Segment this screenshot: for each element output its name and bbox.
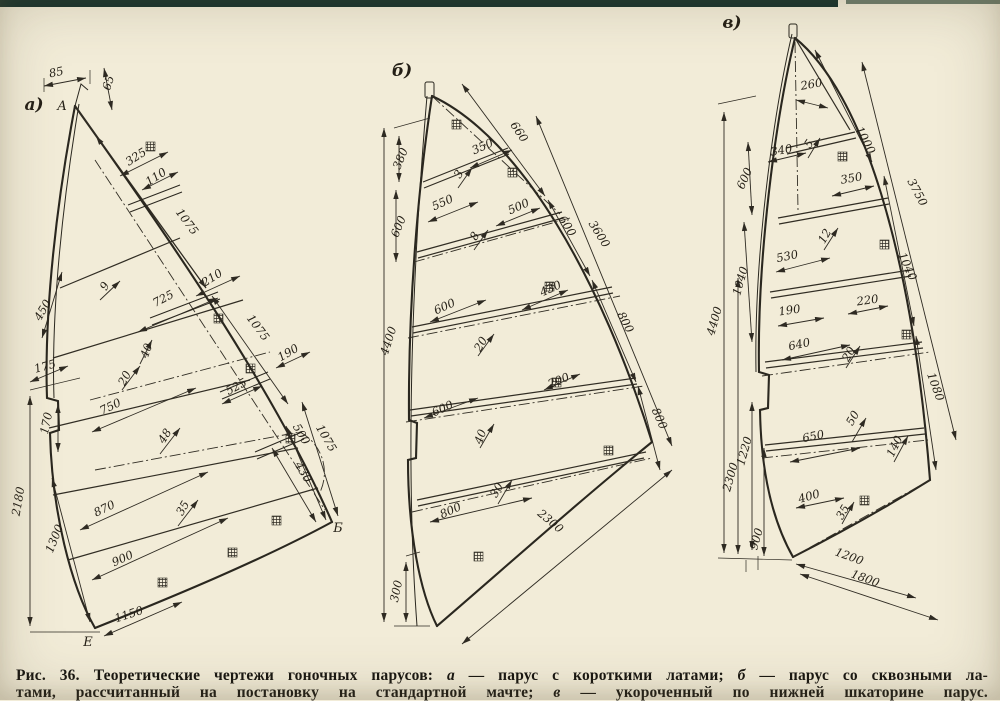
svg-text:640: 640 (787, 335, 811, 353)
svg-text:600: 600 (388, 214, 409, 240)
svg-text:1075: 1075 (173, 206, 202, 238)
svg-text:430: 430 (291, 458, 315, 485)
figure-number: Рис. 36. (16, 667, 80, 684)
caption-text: — парус со сквозными ла- (746, 667, 988, 684)
svg-text:3600: 3600 (586, 218, 613, 250)
svg-text:140: 140 (883, 433, 905, 459)
sail-b-drawing: б) 380 600 4400 660 350 3 550 500 8 600 … (377, 61, 672, 644)
svg-text:550: 550 (429, 191, 455, 213)
svg-text:800: 800 (649, 405, 671, 431)
scanned-figure-page: { "figure": { "number": "Рис. 36.", "sub… (0, 0, 1000, 700)
svg-text:800: 800 (614, 309, 637, 335)
svg-text:260: 260 (798, 75, 823, 93)
svg-text:20: 20 (114, 368, 134, 388)
svg-text:20: 20 (470, 334, 490, 355)
figure-caption: Рис. 36.Теоретические чертежи гоночных п… (16, 668, 988, 701)
svg-text:190: 190 (275, 341, 301, 364)
panel-label-b: б) (392, 61, 412, 81)
svg-text:800: 800 (437, 499, 463, 521)
caption-line-2: тами, рассчитанный на постановку на стан… (16, 685, 988, 701)
svg-text:3750: 3750 (904, 176, 930, 208)
svg-text:4400: 4400 (703, 305, 725, 338)
caption-italic-b: б (738, 667, 746, 684)
sail-a-dimension-labels: 85 65 325 110 1075 210 450 9 725 40 1075… (8, 64, 339, 626)
svg-text:1800: 1800 (849, 567, 881, 590)
sail-v-battens (762, 38, 930, 557)
svg-text:350: 350 (839, 169, 863, 187)
svg-text:870: 870 (91, 497, 117, 519)
svg-text:600: 600 (429, 397, 455, 419)
svg-text:300: 300 (387, 579, 405, 603)
svg-text:530: 530 (775, 247, 799, 265)
svg-text:1150: 1150 (113, 603, 145, 625)
sail-b-dimension-lines (384, 84, 672, 644)
sail-drawings-canvas: а) А Б Е 85 65 325 110 1075 210 450 9 72… (0, 0, 1000, 662)
point-label-head-a: А (56, 99, 67, 114)
caption-italic-v: в (553, 684, 560, 701)
svg-text:1080: 1080 (924, 370, 947, 402)
caption-italic-a: а (447, 667, 455, 684)
caption-text: — укороченный по нижней шкаторине парус. (561, 684, 988, 701)
sail-a-leech (75, 106, 332, 522)
sail-v-mast-line (756, 34, 792, 372)
svg-text:12: 12 (815, 226, 834, 246)
svg-text:48: 48 (154, 426, 174, 447)
svg-text:110: 110 (143, 165, 169, 189)
caption-text: Теоретические чертежи гоночных парусов: (94, 667, 447, 684)
svg-text:40: 40 (137, 341, 156, 360)
svg-text:35: 35 (173, 498, 192, 518)
svg-text:4400: 4400 (377, 325, 400, 358)
svg-text:325: 325 (123, 145, 149, 169)
svg-text:600: 600 (431, 295, 457, 317)
svg-text:430: 430 (537, 277, 564, 299)
svg-text:35: 35 (833, 502, 852, 522)
svg-text:1075: 1075 (244, 312, 273, 344)
svg-text:5: 5 (801, 137, 817, 151)
svg-text:600: 600 (556, 213, 580, 239)
caption-text: тами, рассчитанный на постановку на стан… (16, 684, 553, 701)
svg-text:85: 85 (48, 64, 65, 81)
svg-text:340: 340 (769, 141, 793, 159)
svg-text:500: 500 (505, 195, 531, 217)
svg-text:2300: 2300 (534, 506, 566, 536)
panel-label-a: а) (24, 95, 43, 115)
svg-text:210: 210 (198, 266, 225, 290)
svg-text:725: 725 (150, 287, 176, 310)
svg-text:1000: 1000 (852, 124, 878, 156)
point-label-clew-a: Б (332, 521, 343, 536)
svg-text:65: 65 (99, 74, 117, 92)
svg-text:650: 650 (801, 427, 825, 445)
sail-a-hatch-marks (146, 142, 295, 587)
sail-b-foot (437, 442, 652, 626)
svg-text:750: 750 (97, 395, 123, 417)
caption-line-1: Рис. 36.Теоретические чертежи гоночных п… (16, 668, 988, 685)
svg-text:190: 190 (778, 302, 802, 319)
svg-text:2180: 2180 (8, 486, 27, 518)
sail-v-masthead (789, 24, 797, 38)
sail-a-drawing: а) А Б Е 85 65 325 110 1075 210 450 9 72… (8, 64, 343, 650)
svg-text:600: 600 (733, 165, 755, 191)
panel-label-v: в) (722, 13, 741, 33)
sail-a-seams (49, 106, 318, 560)
point-label-tack-a: Е (82, 635, 93, 650)
sail-a-masthead (75, 84, 88, 106)
sail-v-drawing: в) 260 1000 340 5 600 350 3750 530 12 10… (703, 13, 956, 620)
svg-text:50: 50 (843, 408, 862, 428)
svg-text:900: 900 (746, 526, 766, 551)
svg-text:1200: 1200 (833, 545, 865, 568)
svg-text:525: 525 (223, 375, 249, 398)
svg-text:30: 30 (487, 480, 506, 500)
svg-text:900: 900 (109, 547, 135, 569)
svg-text:660: 660 (507, 119, 531, 145)
sail-a-fold-lines (90, 160, 325, 510)
svg-text:380: 380 (390, 146, 411, 172)
svg-text:220: 220 (855, 292, 880, 309)
caption-text: — парус с короткими латами; (455, 667, 738, 684)
svg-text:40: 40 (471, 427, 490, 446)
